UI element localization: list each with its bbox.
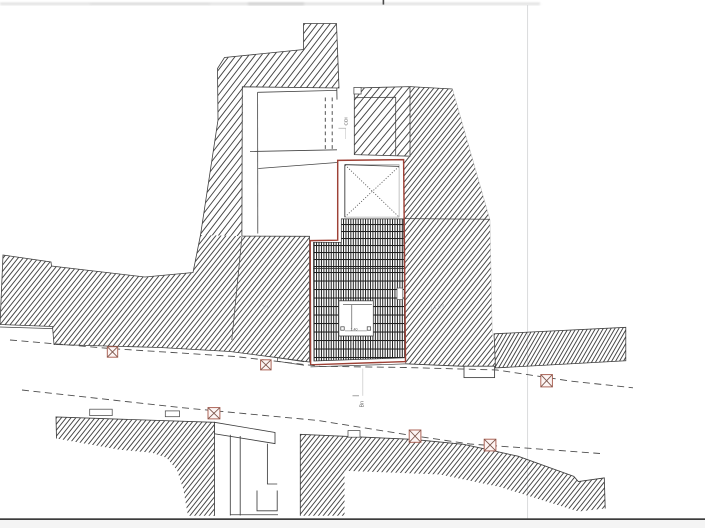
svg-text:CDI: CDI (344, 117, 350, 125)
svg-text:Bn: Bn (360, 401, 366, 408)
svg-text:1.40: 1.40 (351, 328, 358, 332)
